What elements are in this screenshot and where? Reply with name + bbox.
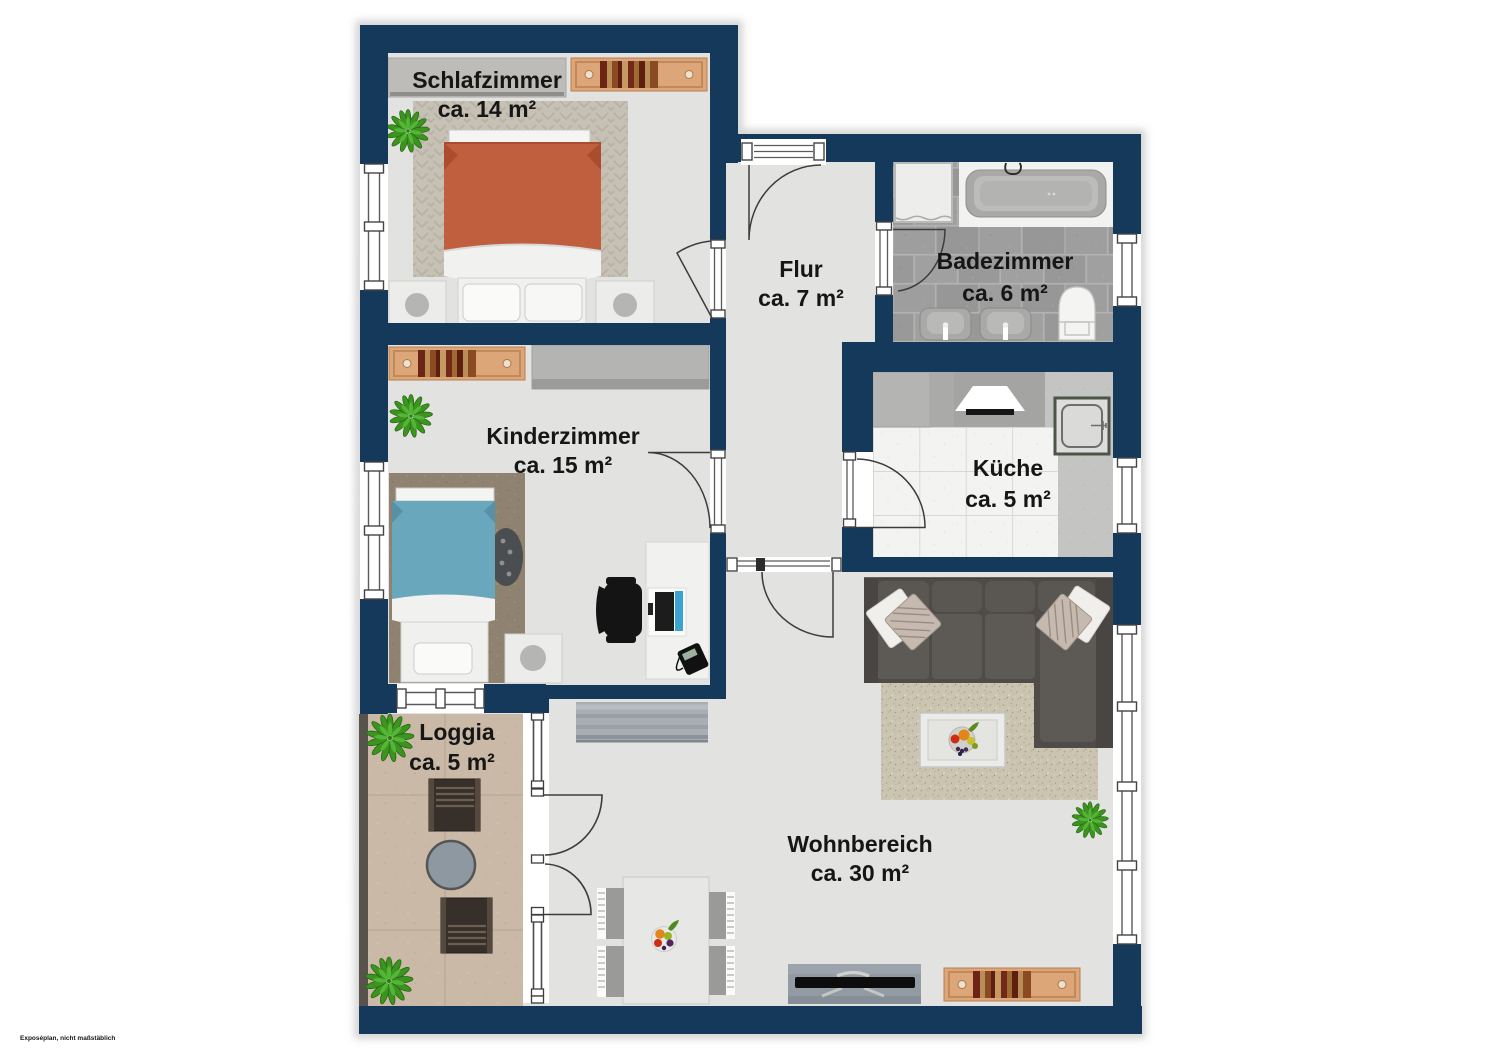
svg-text:Schlafzimmer: Schlafzimmer <box>412 67 562 93</box>
svg-text:Flur: Flur <box>779 256 822 282</box>
svg-text:ca. 30 m²: ca. 30 m² <box>811 860 910 886</box>
svg-text:ca. 7 m²: ca. 7 m² <box>758 285 844 311</box>
svg-text:Wohnbereich: Wohnbereich <box>787 831 932 857</box>
svg-text:Küche: Küche <box>973 455 1043 481</box>
svg-text:ca. 15 m²: ca. 15 m² <box>514 452 613 478</box>
svg-text:Exposéplan, nicht maßstäblich: Exposéplan, nicht maßstäblich <box>20 1035 115 1042</box>
svg-text:Loggia: Loggia <box>419 719 495 745</box>
svg-text:Badezimmer: Badezimmer <box>937 248 1074 274</box>
svg-text:ca. 14 m²: ca. 14 m² <box>438 96 537 122</box>
svg-text:Kinderzimmer: Kinderzimmer <box>486 423 639 449</box>
svg-text:ca. 5 m²: ca. 5 m² <box>965 486 1051 512</box>
svg-text:ca. 5 m²: ca. 5 m² <box>409 749 495 775</box>
svg-text:ca. 6 m²: ca. 6 m² <box>962 280 1048 306</box>
